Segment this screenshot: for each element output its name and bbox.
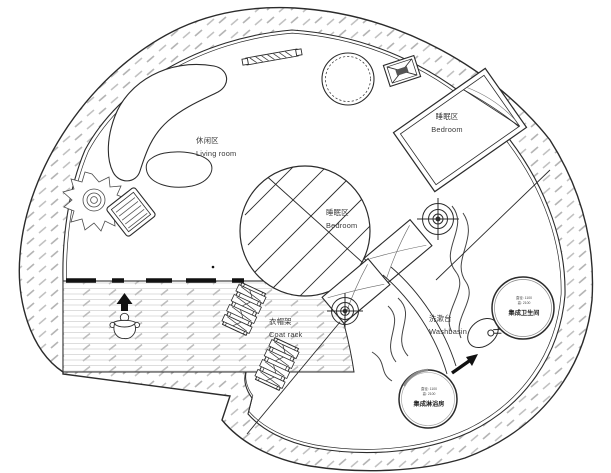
wall-shelf [242, 48, 302, 65]
label-coat-rack-zh: 衣帽架 [269, 317, 292, 326]
shower-pod-label: 集成淋浴房 [413, 400, 445, 408]
floor-plan-svg: 直径: 1100 高: 2100 集成卫生间 直径: 1100 高: 2100 … [0, 0, 611, 473]
label-washbasin-zh: 洗漱台 [429, 314, 452, 323]
label-bedroom-upper-en: Bedroom [431, 125, 462, 134]
label-bedroom-upper-zh: 睡眠区 [436, 112, 459, 121]
bathroom-pod-dim2: 高: 2100 [518, 300, 531, 305]
bathroom-pod-dim1: 直径: 1100 [516, 295, 532, 300]
column-symbol-upper [417, 198, 459, 240]
sector-line-upper [436, 170, 550, 280]
bathroom-pod-label: 集成卫生间 [508, 309, 540, 317]
label-living-room-zh: 休闲区 [196, 136, 219, 145]
shower-pod-dim2: 高: 2100 [423, 391, 436, 396]
label-bedroom-center-zh: 睡眠区 [326, 208, 349, 217]
label-washbasin-en: Washbasin [429, 327, 467, 336]
label-bedroom-center-en: Bedroom [326, 221, 357, 230]
shower-pod: 直径: 1100 高: 2100 集成淋浴房 [399, 370, 457, 428]
round-table [322, 53, 374, 105]
ac-unit-icon [383, 56, 420, 87]
bathroom-pod: 直径: 1100 高: 2100 集成卫生间 [492, 277, 554, 339]
shower-pod-dim1: 直径: 1100 [421, 386, 437, 391]
label-living-room-en: Living room [196, 149, 236, 158]
direction-arrow-icon [452, 354, 478, 373]
label-coat-rack-en: Coat rack [269, 330, 303, 339]
floor-plan-page: 直径: 1100 高: 2100 集成卫生间 直径: 1100 高: 2100 … [0, 0, 611, 473]
reference-dot [212, 266, 215, 269]
